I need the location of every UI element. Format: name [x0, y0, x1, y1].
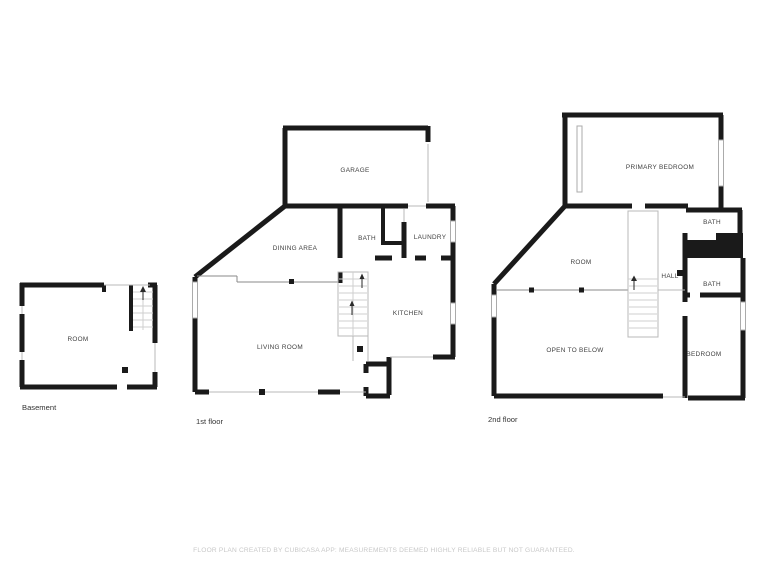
diagonal-wall	[195, 206, 285, 277]
bath-upper-label: BATH	[703, 219, 721, 226]
hall-label: HALL	[661, 273, 678, 280]
second-floor-staircase	[628, 211, 658, 337]
diagonal-wall	[494, 206, 565, 284]
window-marker	[451, 221, 456, 242]
stair-direction-arrow-icon	[350, 301, 355, 307]
window-marker	[451, 303, 456, 324]
window-marker	[719, 140, 724, 186]
first-floor-plan: GARAGE DINING AREA BATH LAUNDRY KITCHEN …	[193, 126, 456, 426]
laundry-label: LAUNDRY	[414, 234, 447, 241]
basement-caption: Basement	[22, 403, 57, 412]
second-floor-railing	[496, 288, 628, 293]
stair-direction-arrow-icon	[631, 276, 637, 282]
window-marker	[577, 126, 582, 192]
first-floor-staircase	[338, 272, 368, 361]
door-marker	[122, 367, 128, 373]
window-marker	[741, 302, 746, 330]
bath-label: BATH	[358, 235, 376, 242]
basement-room-label: ROOM	[67, 336, 88, 343]
kitchen-label: KITCHEN	[393, 310, 423, 317]
floor-plan-image: ROOM Basement GARAGE DINING AREA BA	[0, 0, 768, 576]
second-floor-plan: PRIMARY BEDROOM BATH ROOM HALL BATH OPEN…	[488, 115, 746, 424]
basement-staircase	[133, 286, 153, 330]
window-marker	[492, 295, 497, 317]
room-label: ROOM	[570, 259, 591, 266]
window-marker	[193, 282, 198, 318]
living-room-label: LIVING ROOM	[257, 344, 303, 351]
open-to-below-label: OPEN TO BELOW	[546, 347, 604, 354]
basement-plan: ROOM Basement	[20, 283, 157, 412]
first-floor-walls	[195, 126, 455, 396]
floor-plan-page: ROOM Basement GARAGE DINING AREA BA	[0, 0, 768, 576]
wall-mass	[687, 233, 743, 258]
primary-bedroom-label: PRIMARY BEDROOM	[626, 164, 694, 171]
first-floor-caption: 1st floor	[196, 417, 223, 426]
garage-label: GARAGE	[340, 167, 369, 174]
door-marker	[357, 346, 363, 352]
stair-direction-arrow-icon	[360, 274, 365, 280]
bath-lower-label: BATH	[703, 281, 721, 288]
bedroom-label: BEDROOM	[686, 351, 721, 358]
dining-area-label: DINING AREA	[273, 245, 318, 252]
disclaimer-text: FLOOR PLAN CREATED BY CUBICASA APP: MEAS…	[193, 547, 575, 554]
stair-direction-arrow-icon	[140, 286, 146, 292]
door-marker	[259, 389, 265, 395]
second-floor-caption: 2nd floor	[488, 415, 518, 424]
first-floor-railing	[197, 276, 338, 284]
